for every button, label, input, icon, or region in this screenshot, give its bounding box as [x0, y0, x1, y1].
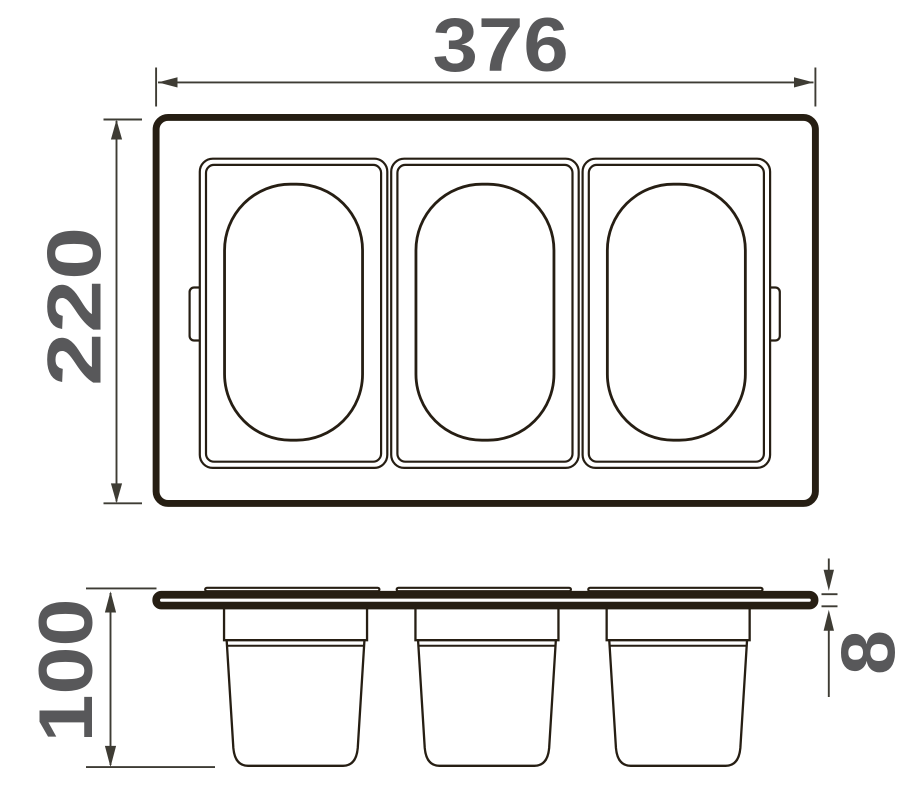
svg-text:100: 100	[24, 599, 109, 743]
svg-text:220: 220	[33, 227, 118, 386]
svg-text:376: 376	[433, 3, 569, 88]
svg-text:8: 8	[827, 630, 912, 675]
